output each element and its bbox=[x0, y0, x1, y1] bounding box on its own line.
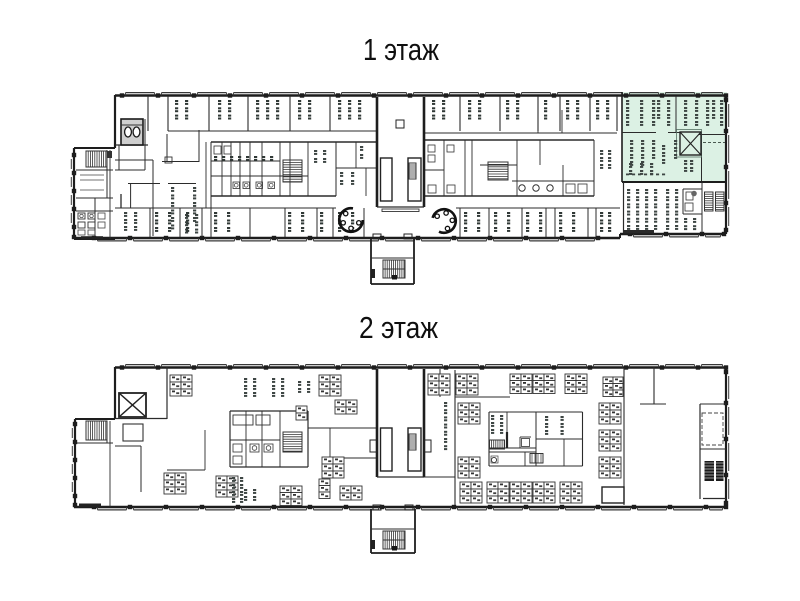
svg-text:1 этаж: 1 этаж bbox=[363, 33, 439, 67]
svg-text:2 этаж: 2 этаж bbox=[359, 311, 439, 345]
